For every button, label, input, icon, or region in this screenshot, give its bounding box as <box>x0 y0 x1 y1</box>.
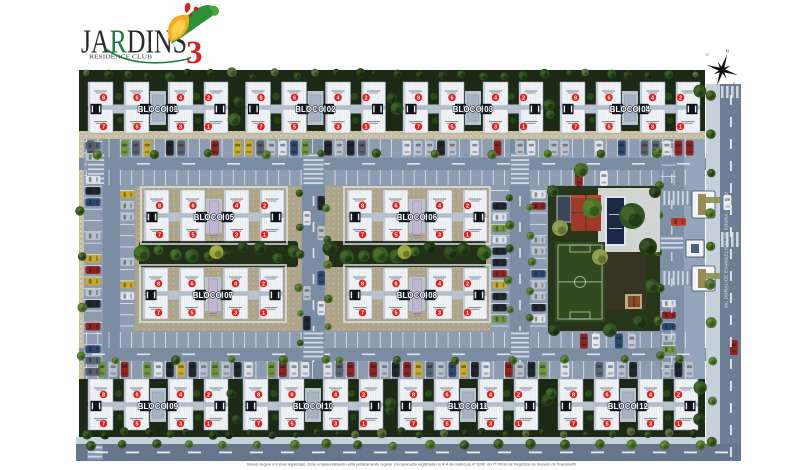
svg-text:3: 3 <box>179 422 182 428</box>
svg-text:8: 8 <box>259 96 262 102</box>
svg-text:2: 2 <box>679 96 682 102</box>
svg-text:2: 2 <box>517 393 520 399</box>
svg-text:2: 2 <box>207 96 210 102</box>
svg-text:BLOCO 10: BLOCO 10 <box>293 402 334 411</box>
svg-text:6: 6 <box>135 393 138 399</box>
svg-text:3: 3 <box>438 311 441 317</box>
svg-text:8: 8 <box>158 204 161 210</box>
svg-text:BLOCO 03: BLOCO 03 <box>453 105 494 114</box>
svg-text:8: 8 <box>412 393 415 399</box>
svg-text:5: 5 <box>394 233 397 239</box>
svg-text:5: 5 <box>191 233 194 239</box>
svg-text:2: 2 <box>522 96 525 102</box>
svg-text:5: 5 <box>605 422 608 428</box>
svg-text:1: 1 <box>522 125 525 131</box>
svg-text:3: 3 <box>334 422 337 428</box>
svg-text:6: 6 <box>445 393 448 399</box>
svg-text:6: 6 <box>607 96 610 102</box>
svg-text:8: 8 <box>572 393 575 399</box>
svg-text:O: O <box>705 53 708 57</box>
svg-text:2: 2 <box>263 204 266 210</box>
svg-text:1: 1 <box>364 125 367 131</box>
svg-text:6: 6 <box>394 204 397 210</box>
svg-text:8: 8 <box>417 96 420 102</box>
svg-text:6: 6 <box>190 282 193 288</box>
svg-text:3: 3 <box>651 125 654 131</box>
svg-text:3: 3 <box>235 233 238 239</box>
svg-text:1: 1 <box>262 311 265 317</box>
svg-text:6: 6 <box>450 96 453 102</box>
svg-text:2: 2 <box>466 282 469 288</box>
svg-text:BLOCO 01: BLOCO 01 <box>138 105 179 114</box>
svg-text:BLOCO 06: BLOCO 06 <box>397 213 438 222</box>
svg-text:6: 6 <box>191 204 194 210</box>
svg-text:1: 1 <box>517 422 520 428</box>
svg-text:8: 8 <box>574 96 577 102</box>
svg-text:5: 5 <box>135 422 138 428</box>
svg-text:7: 7 <box>102 422 105 428</box>
svg-text:5: 5 <box>394 311 397 317</box>
svg-text:8: 8 <box>361 282 364 288</box>
svg-text:8: 8 <box>257 393 260 399</box>
svg-text:7: 7 <box>572 422 575 428</box>
svg-text:5: 5 <box>293 125 296 131</box>
svg-text:5: 5 <box>135 125 138 131</box>
svg-text:6: 6 <box>293 96 296 102</box>
svg-text:1: 1 <box>263 233 266 239</box>
svg-text:7: 7 <box>157 311 160 317</box>
svg-text:7: 7 <box>158 233 161 239</box>
svg-text:1: 1 <box>207 125 210 131</box>
svg-text:7: 7 <box>574 125 577 131</box>
svg-text:7: 7 <box>361 311 364 317</box>
svg-text:2: 2 <box>207 393 210 399</box>
svg-text:1: 1 <box>679 125 682 131</box>
svg-text:BLOCO 04: BLOCO 04 <box>610 105 651 114</box>
svg-text:6: 6 <box>135 96 138 102</box>
svg-text:BLOCO 09: BLOCO 09 <box>138 402 179 411</box>
svg-text:5: 5 <box>607 125 610 131</box>
svg-text:8: 8 <box>157 282 160 288</box>
svg-text:AV. DORALICE EVANGELISTA DE SO: AV. DORALICE EVANGELISTA DE SOUSA, DIRCE… <box>724 192 729 308</box>
svg-text:2: 2 <box>677 393 680 399</box>
svg-text:7: 7 <box>417 125 420 131</box>
svg-text:3: 3 <box>494 125 497 131</box>
svg-text:7: 7 <box>257 422 260 428</box>
svg-text:BLOCO 02: BLOCO 02 <box>295 105 336 114</box>
svg-text:BLOCO 08: BLOCO 08 <box>397 291 438 300</box>
svg-text:2: 2 <box>262 282 265 288</box>
svg-text:6: 6 <box>394 282 397 288</box>
svg-text:7: 7 <box>412 422 415 428</box>
svg-text:5: 5 <box>290 422 293 428</box>
svg-text:BLOCO 05: BLOCO 05 <box>194 213 235 222</box>
svg-text:3: 3 <box>336 125 339 131</box>
svg-text:BLOCO 07: BLOCO 07 <box>193 291 234 300</box>
svg-text:7: 7 <box>102 125 105 131</box>
svg-text:1: 1 <box>362 422 365 428</box>
svg-text:1: 1 <box>207 422 210 428</box>
svg-text:7: 7 <box>259 125 262 131</box>
svg-text:5: 5 <box>450 125 453 131</box>
svg-text:6: 6 <box>290 393 293 399</box>
svg-text:Imóvel seguro é imóvel legaliz: Imóvel seguro é imóvel legalizado. Esse … <box>247 462 577 467</box>
svg-text:3: 3 <box>186 35 203 71</box>
svg-text:3: 3 <box>438 233 441 239</box>
svg-text:3: 3 <box>649 422 652 428</box>
svg-text:2: 2 <box>362 393 365 399</box>
svg-text:BLOCO 11: BLOCO 11 <box>448 402 489 411</box>
svg-text:6: 6 <box>605 393 608 399</box>
svg-text:1: 1 <box>466 311 469 317</box>
svg-text:7: 7 <box>361 233 364 239</box>
svg-text:2: 2 <box>364 96 367 102</box>
svg-text:5: 5 <box>445 422 448 428</box>
svg-text:3: 3 <box>489 422 492 428</box>
svg-text:2: 2 <box>466 204 469 210</box>
svg-text:8: 8 <box>102 96 105 102</box>
svg-text:1: 1 <box>466 233 469 239</box>
svg-text:5: 5 <box>190 311 193 317</box>
svg-text:N: N <box>726 48 729 53</box>
svg-text:3: 3 <box>234 311 237 317</box>
svg-text:3: 3 <box>179 125 182 131</box>
svg-text:8: 8 <box>361 204 364 210</box>
svg-text:8: 8 <box>102 393 105 399</box>
svg-text:BLOCO 12: BLOCO 12 <box>608 402 649 411</box>
svg-text:1: 1 <box>677 422 680 428</box>
